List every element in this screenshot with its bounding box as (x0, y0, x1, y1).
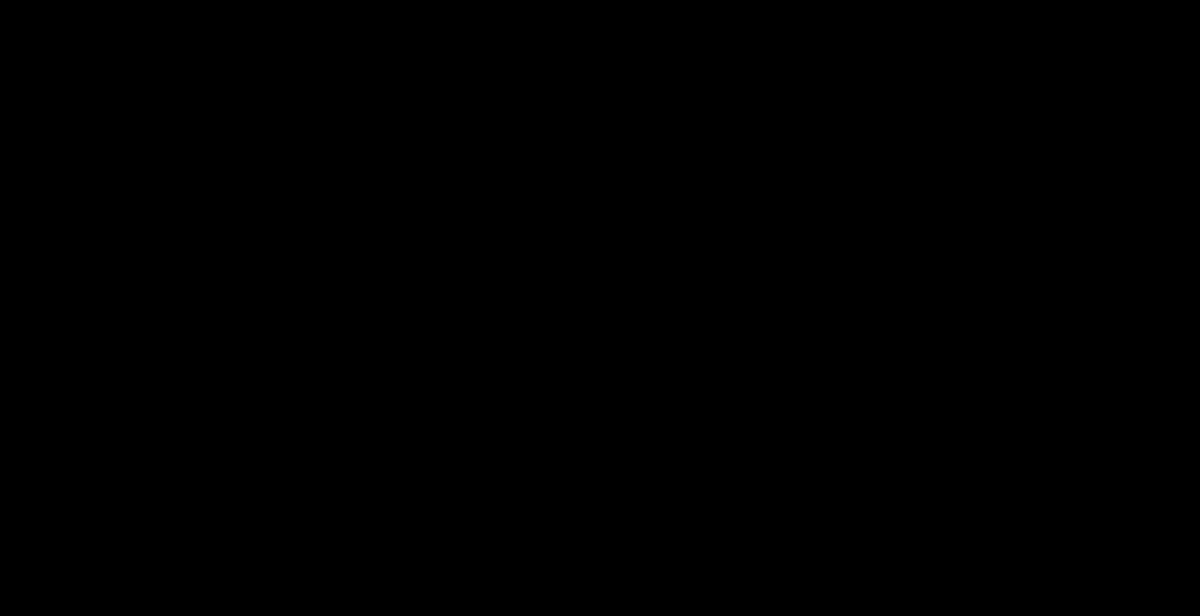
map-viewport[interactable] (0, 0, 1200, 616)
parcel-map (0, 0, 1200, 616)
